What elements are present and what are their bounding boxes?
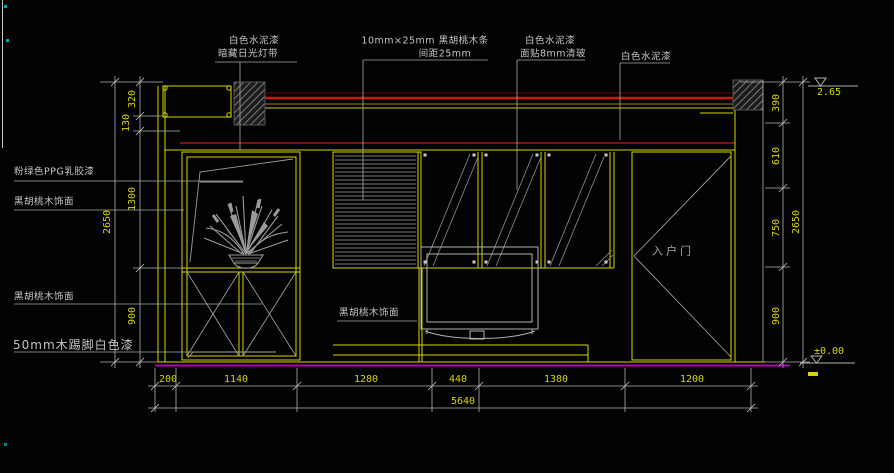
- dim-right-610: 610: [772, 147, 782, 165]
- viewport-edge-marks: [3, 0, 10, 446]
- left-note-walnut-2: 黑胡桃木饰面: [14, 292, 74, 302]
- dim-left-1300: 1300: [128, 187, 138, 211]
- dim-right-750: 750: [772, 219, 782, 237]
- slat-note-line2: 间距25mm: [419, 49, 472, 59]
- tv-icon: [421, 247, 538, 339]
- dim-left-total: 2650: [103, 210, 113, 234]
- level-mark-top: 2.65: [817, 88, 841, 98]
- floor-lines: [155, 362, 790, 366]
- left-cabinet-door-diagonals: [187, 272, 296, 358]
- ceiling-note-line2: 暗藏日光灯带: [218, 49, 278, 59]
- slat-note-line1: 10mm×25mm 黑胡桃木条: [361, 36, 488, 46]
- light-cove-box: [163, 86, 231, 117]
- left-note-ppg-paint: 粉绿色PPG乳胶漆: [14, 167, 94, 177]
- beam-hatch-blocks: [234, 80, 763, 125]
- dim-left-130: 130: [122, 114, 132, 132]
- dim-right-total: 2650: [792, 210, 802, 234]
- slat-panel: [333, 152, 421, 268]
- glass-panels: [421, 152, 614, 268]
- dim-bottom-1200: 1200: [680, 375, 704, 385]
- dim-bottom-1140: 1140: [224, 375, 248, 385]
- dim-bottom-1280: 1280: [354, 375, 378, 385]
- dim-bottom-200: 200: [159, 375, 177, 385]
- cad-elevation-canvas: 白色水泥漆 暗藏日光灯带 10mm×25mm 黑胡桃木条 间距25mm 白色水泥…: [0, 0, 894, 473]
- dim-right-390: 390: [772, 94, 782, 112]
- left-note-skirting: 50mm木踢脚白色漆: [13, 339, 134, 351]
- glass-note-line2: 面贴8mm清玻: [520, 49, 586, 59]
- ceiling-note-line1: 白色水泥漆: [229, 36, 279, 46]
- plant-icon: [204, 196, 288, 268]
- level-mark-floor: ±0.00: [814, 347, 844, 357]
- wall-note: 白色水泥漆: [621, 52, 671, 62]
- dim-right-900: 900: [772, 307, 782, 325]
- dim-bottom-440: 440: [449, 375, 467, 385]
- dim-left-900: 900: [128, 307, 138, 325]
- dim-left-320: 320: [128, 90, 138, 108]
- level-marks: [800, 78, 858, 376]
- elevation-linework: [0, 0, 894, 473]
- tv-cabinet-note: 黑胡桃木饰面: [339, 308, 399, 318]
- dim-bottom-1380: 1380: [544, 375, 568, 385]
- entry-door-label: 入户门: [652, 246, 694, 257]
- left-note-walnut-1: 黑胡桃木饰面: [14, 197, 74, 207]
- glass-note-line1: 白色水泥漆: [525, 36, 575, 46]
- dim-bottom-total: 5640: [451, 397, 475, 407]
- left-cabinet: [182, 152, 300, 360]
